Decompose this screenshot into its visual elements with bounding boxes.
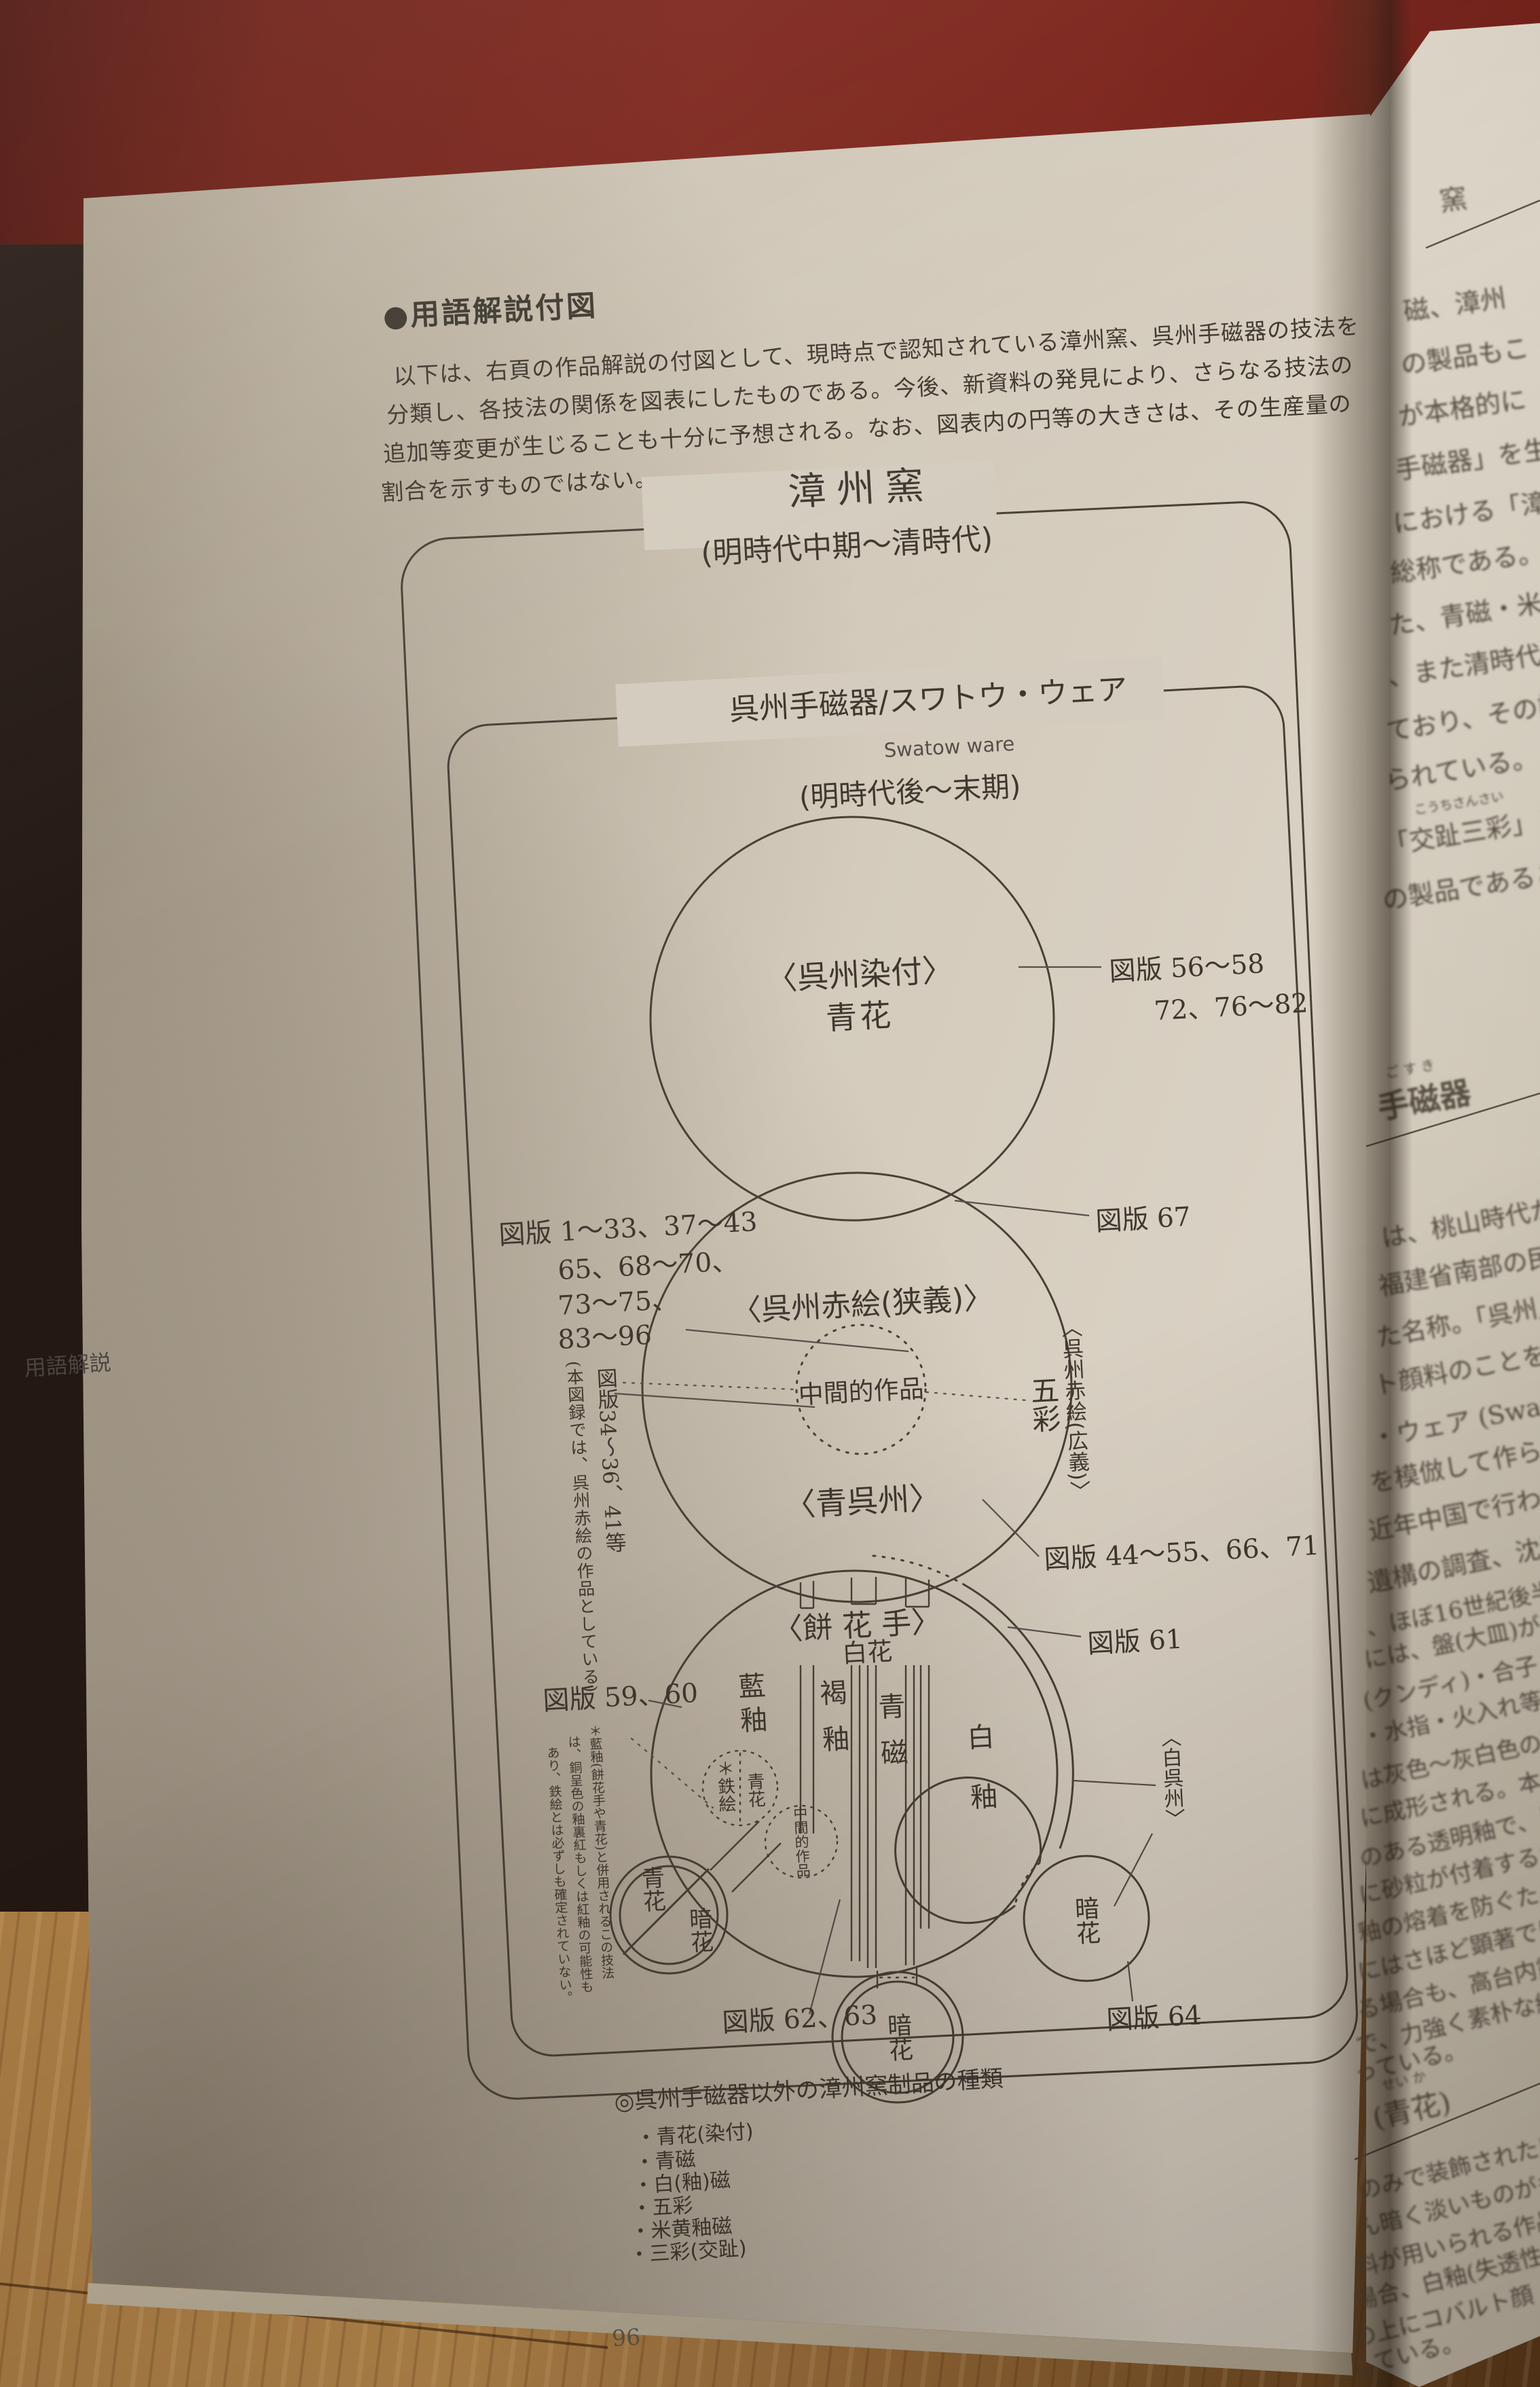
sometsuke-tech: 青花	[824, 990, 894, 1038]
anka-right-label: 暗花	[1066, 1895, 1104, 1946]
margin-label: 用語解説	[23, 1345, 112, 1383]
plates-83-96: 83〜96	[557, 1314, 653, 1357]
plates-59-60: 図版 59、60	[542, 1672, 699, 1718]
anka-left-label: 暗花	[682, 1906, 717, 1954]
book-gutter-shadow	[1310, 0, 1412, 2387]
page-number: 96	[611, 2323, 641, 2351]
tetsue-label: ＊鉄絵	[711, 1759, 739, 1813]
chukan-label: 中間的作品	[797, 1368, 925, 1411]
rp-header-top: 窯	[1437, 176, 1469, 219]
plates-61: 図版 61	[1086, 1618, 1184, 1661]
plates-56-58: 図版 56〜58	[1108, 943, 1265, 989]
chukan2-label: 中間的作品	[789, 1806, 813, 1878]
plates-62-63: 図版 62、63	[721, 1994, 878, 2040]
anka-bottom-label: 暗花	[879, 2012, 917, 2063]
seika-small-label: 青花	[741, 1772, 769, 1808]
plates-72-82: 72、76〜82	[1153, 982, 1309, 1028]
plates-67: 図版 67	[1095, 1196, 1192, 1239]
plates-64: 図版 64	[1105, 1994, 1203, 2037]
hakuyu-label: 白釉	[957, 1722, 1003, 1844]
book-photo: { "frame": { "page_number": "96", "margi…	[0, 0, 1540, 2387]
seiji-label: 青磁	[868, 1692, 913, 1786]
ranyu-label: 藍釉	[729, 1671, 771, 1741]
shirogosu-label: 〈白呉州〉	[1153, 1726, 1188, 1829]
hakka-label: 白花	[841, 1630, 894, 1670]
katsuyu-label: 褐釉	[810, 1678, 854, 1772]
outer-title: 漳州窯	[786, 454, 936, 517]
aogosu-name: 〈青呉州〉	[783, 1473, 941, 1526]
seika-circle-label: 青花	[634, 1865, 670, 1913]
